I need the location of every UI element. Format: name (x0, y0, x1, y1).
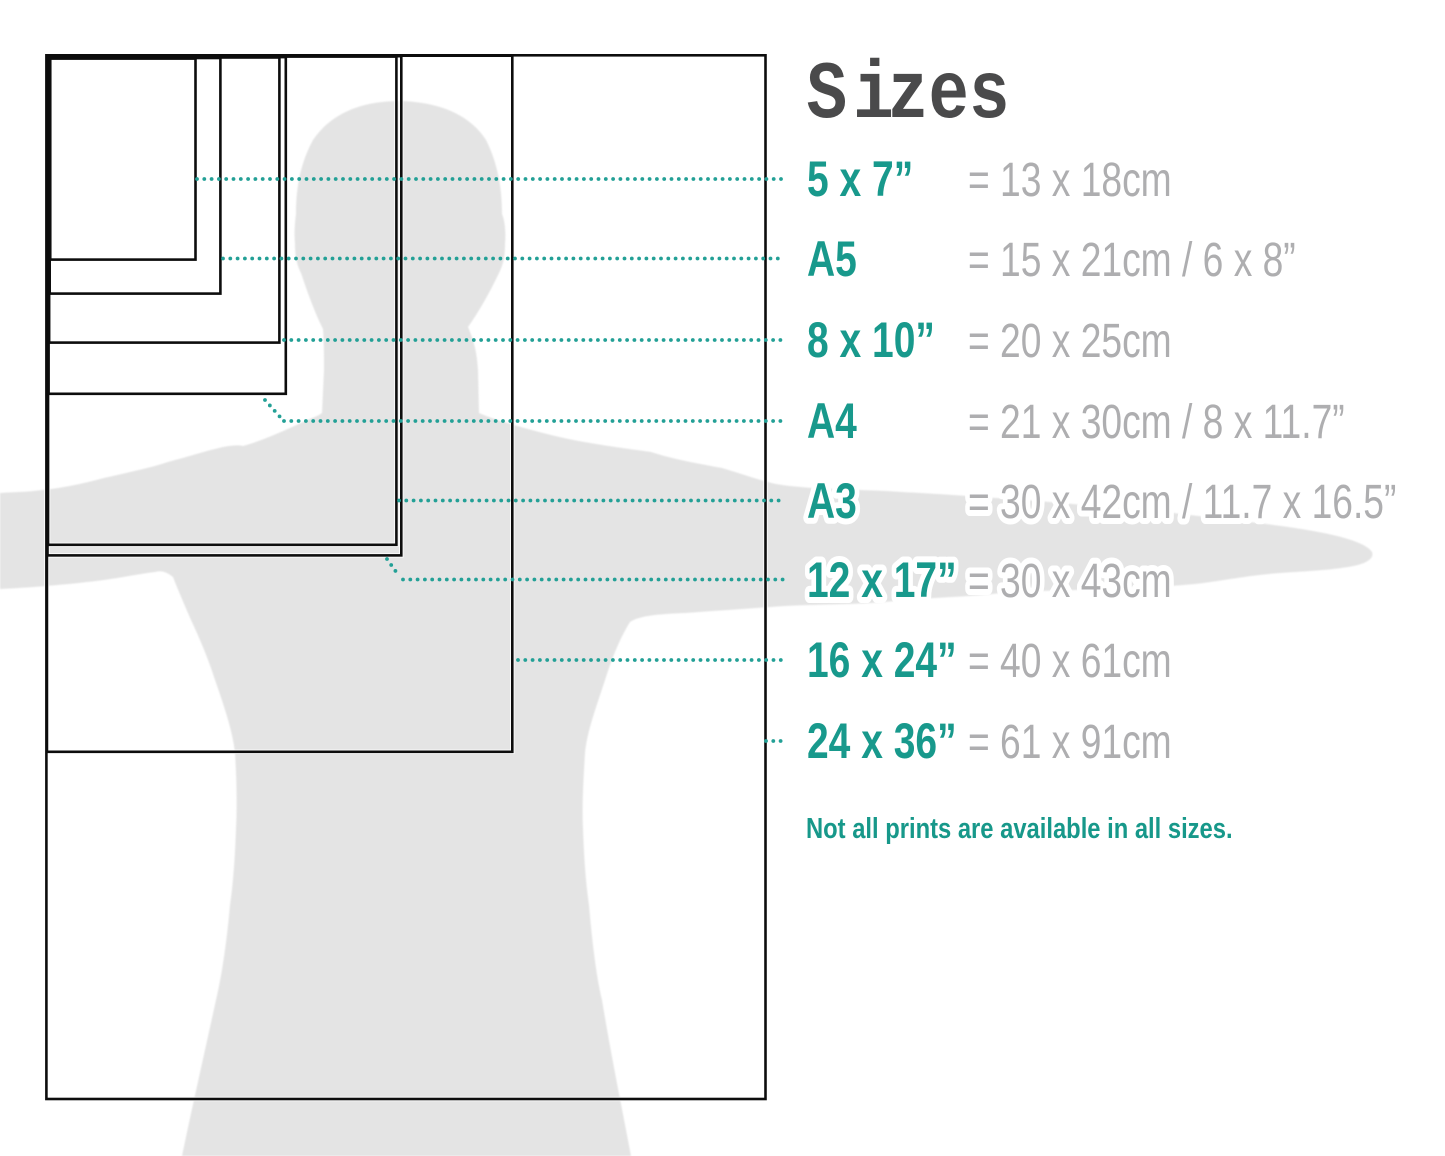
svg-text:= 20 x 25cm: = 20 x 25cm (968, 314, 1172, 368)
svg-text:A5: A5 (807, 230, 857, 287)
svg-text:= 30 x 43cm: = 30 x 43cm (968, 554, 1172, 608)
svg-text:Not all prints are available i: Not all prints are available in all size… (806, 812, 1233, 845)
svg-text:= 15 x 21cm / 6 x 8”: = 15 x 21cm / 6 x 8” (968, 233, 1296, 287)
svg-text:24 x 36”: 24 x 36” (807, 712, 957, 769)
svg-text:A3: A3 (807, 472, 857, 529)
svg-text:A4: A4 (807, 392, 857, 449)
svg-text:16 x 24”: 16 x 24” (807, 631, 957, 688)
svg-text:8 x 10”: 8 x 10” (807, 311, 935, 368)
svg-text:12 x 17”: 12 x 17” (807, 551, 957, 608)
svg-text:5 x 7”: 5 x 7” (807, 150, 913, 207)
svg-text:Sizes: Sizes (807, 48, 1010, 142)
svg-text:= 61 x 91cm: = 61 x 91cm (968, 715, 1172, 769)
svg-text:= 21 x 30cm / 8 x 11.7”: = 21 x 30cm / 8 x 11.7” (968, 395, 1345, 449)
svg-text:= 13 x 18cm: = 13 x 18cm (968, 153, 1172, 207)
svg-text:= 40 x 61cm: = 40 x 61cm (968, 634, 1172, 688)
svg-text:= 30 x 42cm / 11.7 x 16.5”: = 30 x 42cm / 11.7 x 16.5” (968, 475, 1396, 529)
